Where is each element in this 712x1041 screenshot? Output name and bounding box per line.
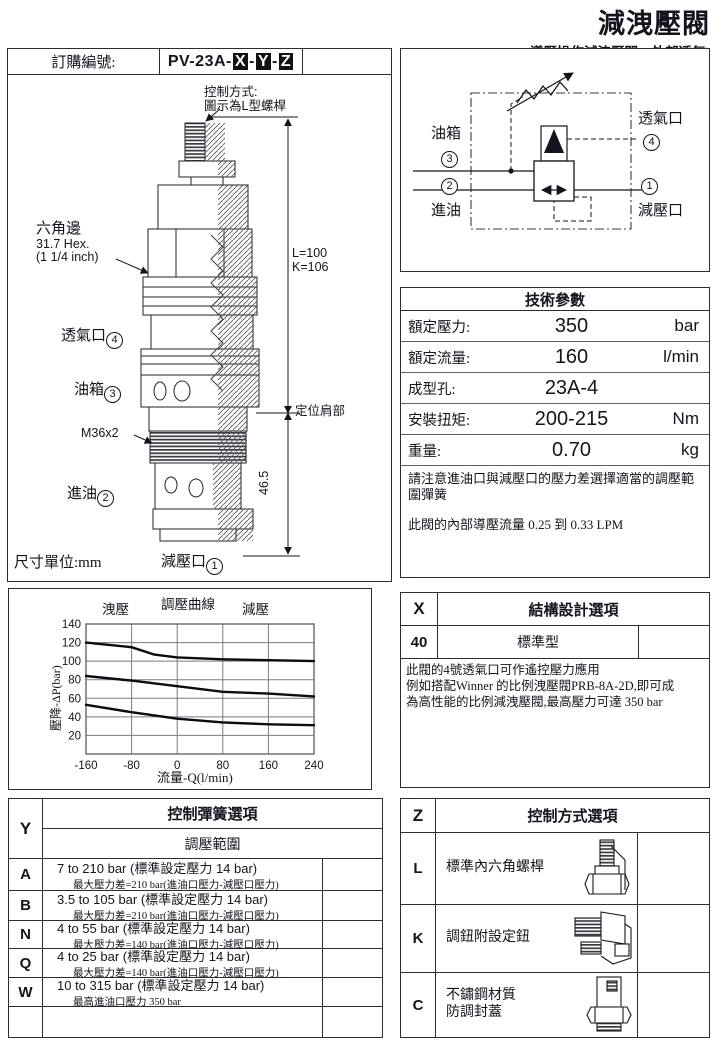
svg-text:20: 20 (68, 730, 81, 742)
symbol-vent-number: 4 (643, 130, 660, 151)
order-code-y: Y (256, 53, 271, 70)
tech-row-weight: 重量: 0.70 kg (401, 435, 709, 466)
z-options-title: 控制方式選項 (436, 799, 709, 832)
y-options-letter: Y (9, 799, 43, 858)
svg-text:-160: -160 (74, 760, 97, 772)
svg-text:-80: -80 (123, 760, 140, 772)
adjust-knob-icon (573, 910, 633, 968)
tech-notes: 請注意進油口與減壓口的壓力差選擇適當的調壓範圍彈簧 此閥的內部導壓流量 0.25… (401, 466, 709, 538)
vent-port-label: 透氣口4 (61, 328, 123, 349)
pressure-curve-panel: -160-8008016024020406080100120140 調壓曲線 洩… (8, 588, 372, 790)
tank-port-label: 油箱3 (74, 382, 121, 403)
x-option-row-40: 40 標準型 (401, 626, 709, 659)
tech-row-rated-flow: 額定流量: 160 l/min (401, 342, 709, 373)
x-options-table: X 結構設計選項 40 標準型 此閥的4號透氣口可作遙控壓力應用 例如搭配Win… (400, 592, 710, 788)
y-options-title: 控制彈簧選項 (43, 799, 382, 829)
z-options-letter: Z (401, 799, 436, 832)
y-option-row-w: W 10 to 315 bar (標準設定壓力 14 bar) 最高進油口壓力 … (9, 978, 382, 1007)
thread-size-label: M36x2 (81, 427, 119, 441)
svg-text:100: 100 (62, 656, 81, 668)
shoulder-dimension: 46.5 (258, 471, 272, 495)
symbol-vent-label: 透氣口 (638, 107, 683, 128)
svg-text:240: 240 (304, 760, 323, 772)
x-option-empty-cell (639, 626, 709, 658)
order-empty-cell (303, 49, 391, 74)
tech-row-cavity: 成型孔: 23A-4 (401, 373, 709, 404)
x-options-title: 結構設計選項 (438, 593, 709, 625)
tech-note-spring: 請注意進油口與減壓口的壓力差選擇適當的調壓範圍彈簧 (408, 471, 698, 504)
x-option-code: 40 (401, 626, 438, 658)
y-option-row-n: N 4 to 55 bar (標準設定壓力 14 bar) 最大壓力差=140 … (9, 921, 382, 949)
x-options-note: 此閥的4號透氣口可作遙控壓力應用 例如搭配Winner 的比例洩壓閥PRB-8A… (401, 659, 709, 713)
tech-params-header: 技術參數 (401, 288, 709, 311)
svg-text:40: 40 (68, 712, 81, 724)
symbol-inlet-label: 進油 (431, 199, 461, 220)
y-option-row-q: Q 4 to 25 bar (標準設定壓力 14 bar) 最大壓力差=140 … (9, 949, 382, 978)
port-number-2: 2 (97, 490, 114, 507)
y-options-subtitle: 調壓範圍 (43, 829, 382, 858)
chart-xlabel: 流量-Q(l/min) (157, 767, 233, 786)
port-number-4: 4 (106, 332, 123, 349)
z-option-row-l: L 標準內六角螺桿 (401, 833, 709, 905)
chart-label-relief: 洩壓 (102, 598, 129, 618)
x-options-letter: X (401, 593, 438, 625)
z-option-row-k: K 調鈕附設定鈕 (401, 905, 709, 973)
tech-row-rated-pressure: 額定壓力: 350 bar (401, 311, 709, 342)
symbol-reduce-number: 1 (641, 174, 658, 195)
hex-screw-icon (581, 838, 633, 900)
y-options-table: Y 控制彈簧選項 調壓範圍 A 7 to 210 bar (標準設定壓力 14 … (8, 798, 383, 1038)
symbol-reduce-label: 減壓口 (638, 199, 683, 220)
y-option-row-empty (9, 1007, 382, 1038)
hydraulic-symbol-panel: 油箱 3 2 進油 透氣口 4 1 減壓口 (400, 48, 710, 272)
port-number-1: 1 (206, 558, 223, 575)
chart-title: 調壓曲線 (161, 593, 215, 613)
order-code-x: X (233, 53, 248, 70)
valve-datasheet-page: 減洩壓閥 (導壓操作減洩壓閥、外部透氣) 訂購編號: PV-23A-X-Y-Z (0, 0, 712, 1041)
y-options-header-row: Y 控制彈簧選項 調壓範圍 (9, 799, 382, 859)
svg-text:60: 60 (68, 693, 81, 705)
z-option-row-c: C 不鏽鋼材質 防調封蓋 (401, 973, 709, 1037)
reduced-port-label: 減壓口1 (161, 554, 223, 575)
x-options-header-row: X 結構設計選項 (401, 593, 709, 626)
tamper-cap-icon (585, 975, 633, 1035)
hex-flats-note: 六角邊 31.7 Hex. (1 1/4 inch) (36, 221, 99, 265)
svg-text:80: 80 (68, 675, 81, 687)
page-title: 減洩壓閥 (290, 2, 710, 41)
port-number-3: 3 (104, 386, 121, 403)
order-code-z: Z (279, 53, 293, 70)
order-number-row: 訂購編號: PV-23A-X-Y-Z (8, 49, 391, 75)
svg-text:120: 120 (62, 638, 81, 650)
z-options-table: Z 控制方式選項 L 標準內六角螺桿 (400, 798, 710, 1038)
tech-params-table: 技術參數 額定壓力: 350 bar 額定流量: 160 l/min 成型孔: … (400, 287, 710, 578)
order-number-label: 訂購編號: (8, 49, 160, 74)
x-option-label: 標準型 (438, 626, 639, 658)
y-option-row-b: B 3.5 to 105 bar (標準設定壓力 14 bar) 最大壓力差=2… (9, 891, 382, 921)
control-method-note: 控制方式: 圖示為L型螺桿 (204, 86, 286, 114)
order-code: PV-23A-X-Y-Z (160, 49, 303, 74)
svg-text:160: 160 (259, 760, 278, 772)
symbol-tank-number: 3 (441, 147, 458, 168)
svg-text:140: 140 (62, 619, 81, 631)
z-options-header-row: Z 控制方式選項 (401, 799, 709, 833)
inlet-port-label: 進油2 (67, 486, 114, 507)
chart-label-reduce: 減壓 (242, 598, 269, 618)
valve-drawing-area: 控制方式: 圖示為L型螺桿 六角邊 31.7 Hex. (1 1/4 inch)… (8, 75, 391, 581)
drawing-panel: 訂購編號: PV-23A-X-Y-Z (7, 48, 392, 582)
order-code-prefix: PV-23A- (168, 53, 232, 71)
tech-note-pilot-flow: 此閥的內部導壓流量 0.25 到 0.33 LPM (408, 517, 702, 533)
symbol-tank-label: 油箱 (431, 122, 461, 143)
tech-row-torque: 安裝扭矩: 200-215 Nm (401, 404, 709, 435)
symbol-inlet-number: 2 (441, 174, 458, 195)
chart-ylabel: 壓降-ΔP(bar) (47, 665, 64, 731)
dimension-unit-note: 尺寸單位:mm (14, 555, 102, 572)
locating-shoulder-label: 定位肩部 (295, 405, 345, 419)
length-dimensions: L=100 K=106 (292, 247, 329, 275)
y-option-row-a: A 7 to 210 bar (標準設定壓力 14 bar) 最大壓力差=210… (9, 859, 382, 891)
